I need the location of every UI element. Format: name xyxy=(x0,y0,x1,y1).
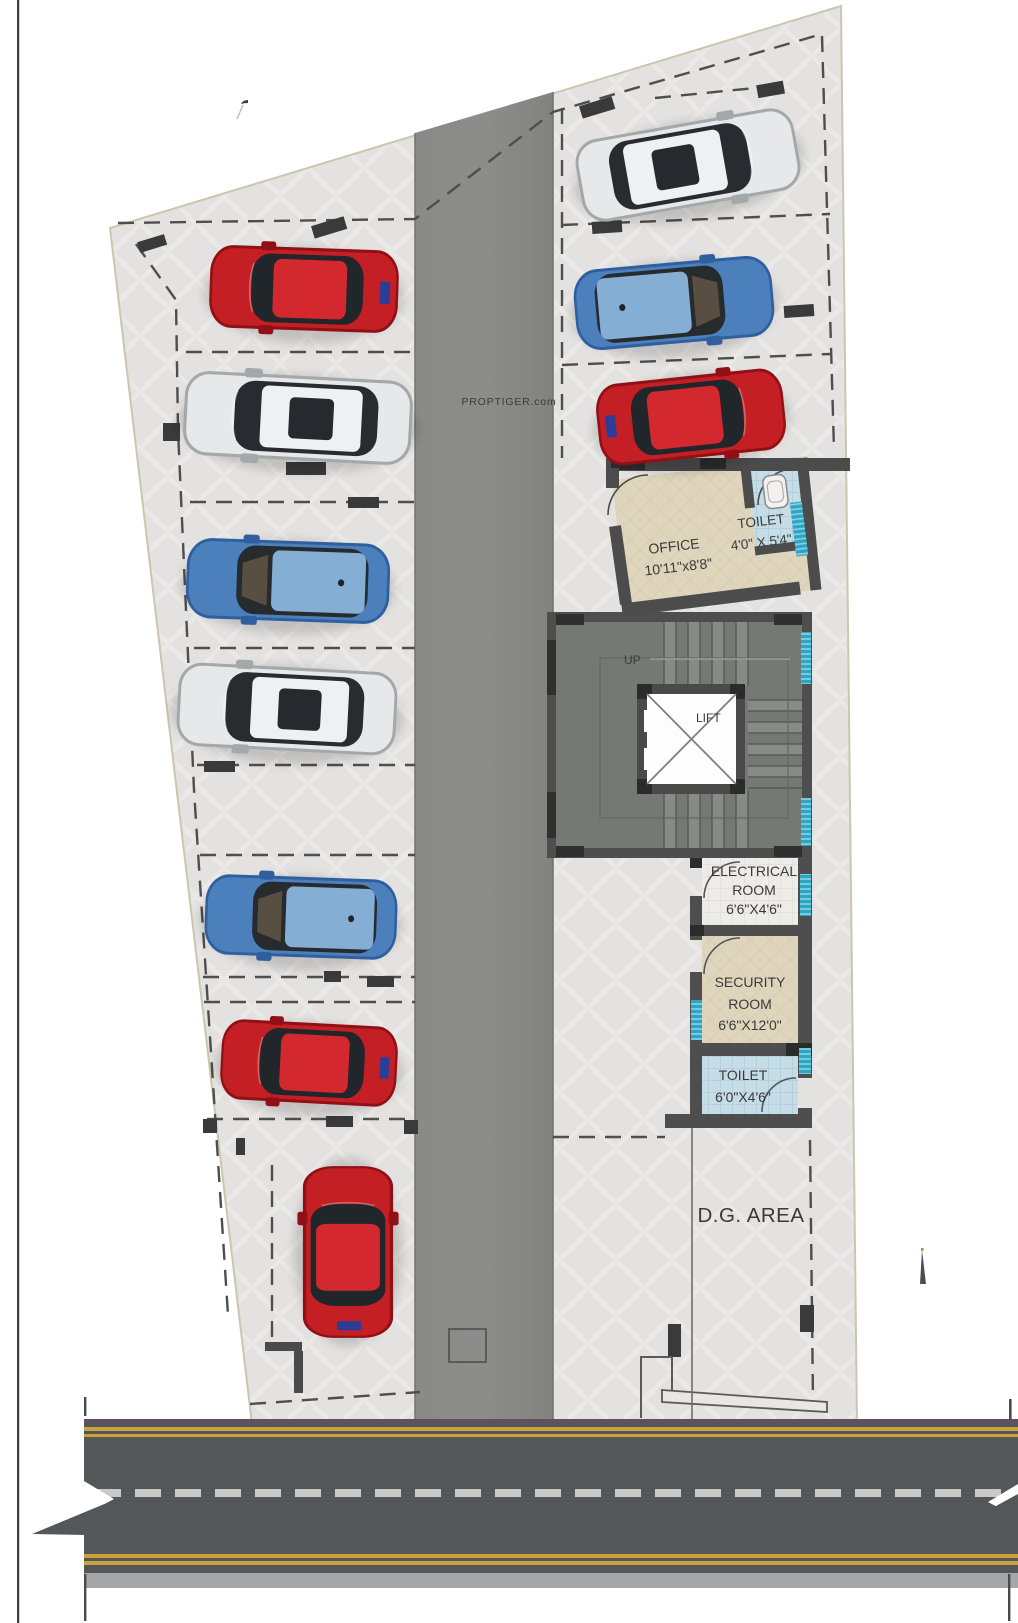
svg-text:UP: UP xyxy=(624,653,641,667)
svg-text:D.G. AREA: D.G. AREA xyxy=(697,1204,804,1227)
svg-text:ROOM: ROOM xyxy=(732,882,776,898)
svg-text:ROOM: ROOM xyxy=(728,996,772,1012)
svg-text:6'6"X4'6": 6'6"X4'6" xyxy=(726,901,782,917)
svg-text:LIFT: LIFT xyxy=(696,711,721,725)
svg-text:TOILET: TOILET xyxy=(719,1067,768,1083)
svg-text:PROPTIGER.com: PROPTIGER.com xyxy=(462,396,557,408)
svg-text:ELECTRICAL: ELECTRICAL xyxy=(711,863,798,879)
svg-text:SECURITY: SECURITY xyxy=(715,974,786,990)
svg-text:6'6"X12'0": 6'6"X12'0" xyxy=(718,1017,782,1033)
svg-text:6'0"X4'6": 6'0"X4'6" xyxy=(715,1089,771,1105)
